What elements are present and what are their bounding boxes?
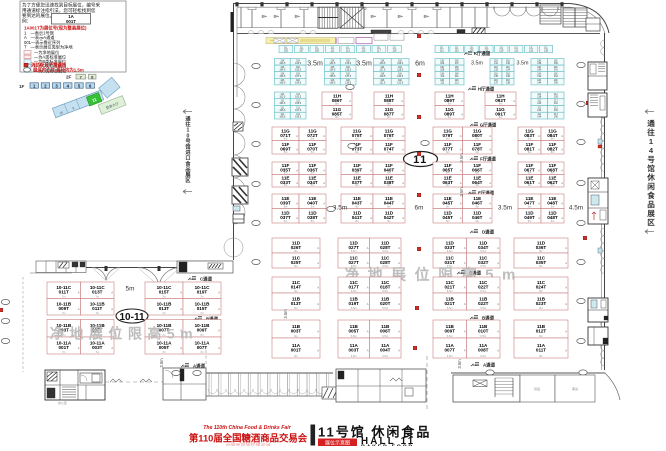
svg-text:6.5m: 6.5m bbox=[382, 289, 388, 293]
svg-text:6m: 6m bbox=[294, 249, 298, 253]
svg-text:106.5: 106.5 bbox=[279, 109, 286, 112]
svg-text:132: 132 bbox=[506, 62, 511, 65]
svg-text:A: A bbox=[367, 348, 369, 352]
svg-text:007T: 007T bbox=[445, 347, 456, 352]
svg-text:6.5m: 6.5m bbox=[447, 334, 453, 338]
svg-text:区: 区 bbox=[185, 176, 191, 184]
svg-text:A: A bbox=[370, 148, 372, 152]
svg-text:A: A bbox=[565, 348, 567, 352]
svg-text:6m: 6m bbox=[446, 137, 450, 141]
svg-text:6m: 6m bbox=[499, 102, 503, 106]
svg-text:8m: 8m bbox=[539, 264, 543, 268]
svg-text:7m: 7m bbox=[95, 350, 99, 354]
svg-text:6.5m: 6.5m bbox=[382, 249, 388, 253]
svg-text:3.5m: 3.5m bbox=[159, 358, 164, 368]
svg-text:013T: 013T bbox=[291, 301, 302, 306]
svg-text:6m: 6m bbox=[387, 171, 391, 175]
svg-text:A: A bbox=[398, 285, 400, 289]
svg-text:A: A bbox=[218, 329, 220, 333]
svg-text:A: A bbox=[497, 348, 499, 352]
svg-text:005T: 005T bbox=[349, 328, 360, 333]
svg-text:140: 140 bbox=[537, 102, 542, 105]
svg-text:6.5m: 6.5m bbox=[351, 306, 357, 310]
svg-text:A: A bbox=[367, 285, 369, 289]
svg-text:A: A bbox=[538, 134, 540, 138]
svg-text:3.5m: 3.5m bbox=[471, 61, 483, 67]
svg-text:7m: 7m bbox=[62, 350, 66, 354]
svg-text:A: A bbox=[367, 261, 369, 265]
svg-text:6m: 6m bbox=[387, 115, 391, 119]
svg-text:8m: 8m bbox=[539, 249, 543, 253]
svg-text:143: 143 bbox=[554, 109, 559, 112]
svg-text:A: A bbox=[323, 134, 325, 138]
svg-text:6m: 6m bbox=[551, 183, 555, 187]
svg-text:6m: 6m bbox=[499, 115, 503, 119]
svg-text:A: A bbox=[317, 329, 319, 333]
svg-text:6m: 6m bbox=[355, 183, 359, 187]
svg-text:6m: 6m bbox=[528, 219, 532, 223]
svg-text:6m: 6m bbox=[551, 219, 555, 223]
svg-text:A: A bbox=[464, 246, 466, 250]
svg-text:133.5: 133.5 bbox=[345, 62, 352, 65]
svg-text:5m: 5m bbox=[126, 286, 135, 293]
svg-text:1F: 1F bbox=[19, 84, 25, 89]
svg-text:6m: 6m bbox=[475, 205, 479, 209]
svg-text:115: 115 bbox=[361, 50, 365, 53]
svg-text:H厅通道: H厅通道 bbox=[478, 85, 495, 92]
svg-text:库房: 库房 bbox=[572, 386, 578, 391]
svg-text:3.5m: 3.5m bbox=[517, 61, 529, 67]
svg-text:A: A bbox=[565, 261, 567, 265]
svg-text:011T: 011T bbox=[536, 347, 546, 352]
svg-text:108.5: 108.5 bbox=[279, 82, 286, 85]
svg-text:A: A bbox=[489, 181, 491, 185]
svg-text:A: A bbox=[460, 148, 462, 152]
svg-text:103.5: 103.5 bbox=[295, 95, 302, 98]
svg-text:6m: 6m bbox=[415, 61, 425, 68]
svg-text:6.5m: 6.5m bbox=[382, 354, 388, 358]
svg-text:5m: 5m bbox=[311, 219, 315, 223]
svg-text:6m: 6m bbox=[355, 219, 359, 223]
svg-text:货运: 货运 bbox=[534, 386, 540, 391]
svg-text:009T: 009T bbox=[445, 328, 456, 333]
svg-text:6.5m: 6.5m bbox=[351, 334, 357, 338]
svg-text:3.5m: 3.5m bbox=[283, 309, 288, 319]
svg-text:103.5: 103.5 bbox=[295, 62, 302, 65]
svg-text:A: A bbox=[296, 216, 298, 220]
svg-text:118.5: 118.5 bbox=[397, 68, 403, 71]
svg-text:6.5m: 6.5m bbox=[382, 306, 388, 310]
svg-text:6m: 6m bbox=[446, 183, 450, 187]
svg-text:A: A bbox=[370, 169, 372, 173]
svg-text:8m: 8m bbox=[539, 289, 543, 293]
svg-text:A: A bbox=[464, 302, 466, 306]
svg-text:A通道: A通道 bbox=[483, 361, 496, 368]
svg-text:5m: 5m bbox=[284, 137, 288, 141]
svg-text:117: 117 bbox=[377, 50, 381, 53]
svg-text:A: A bbox=[464, 285, 466, 289]
svg-text:009T: 009T bbox=[197, 328, 208, 333]
svg-text:A: A bbox=[402, 134, 404, 138]
svg-text:106: 106 bbox=[440, 62, 445, 65]
svg-text:138.5: 138.5 bbox=[329, 82, 336, 85]
svg-text:A: A bbox=[565, 246, 567, 250]
svg-text:7m: 7m bbox=[62, 311, 66, 315]
svg-text:6m: 6m bbox=[335, 115, 339, 119]
svg-text:通: 通 bbox=[647, 118, 655, 128]
svg-text:A: A bbox=[78, 346, 80, 350]
svg-text:A: A bbox=[513, 113, 515, 117]
svg-text:013T: 013T bbox=[159, 306, 170, 311]
svg-text:A: A bbox=[538, 169, 540, 173]
svg-text:6.5m: 6.5m bbox=[480, 289, 486, 293]
svg-text:A: A bbox=[370, 134, 372, 138]
svg-text:A: A bbox=[497, 302, 499, 306]
svg-text:115.5: 115.5 bbox=[379, 62, 385, 65]
svg-text:110: 110 bbox=[440, 75, 444, 78]
svg-text:145: 145 bbox=[554, 116, 559, 119]
svg-text:102.5: 102.5 bbox=[279, 62, 286, 65]
svg-text:休: 休 bbox=[646, 172, 655, 182]
svg-text:A: A bbox=[561, 216, 563, 220]
svg-text:012T: 012T bbox=[536, 328, 547, 333]
svg-text:8m: 8m bbox=[539, 354, 543, 358]
svg-text:A: A bbox=[402, 202, 404, 206]
svg-text:品: 品 bbox=[647, 200, 655, 209]
svg-text:021T: 021T bbox=[445, 284, 456, 289]
svg-text:A: A bbox=[349, 99, 351, 103]
svg-text:133: 133 bbox=[529, 50, 534, 53]
svg-text:003T: 003T bbox=[291, 328, 302, 333]
svg-text:022T: 022T bbox=[478, 301, 489, 306]
svg-text:116.5: 116.5 bbox=[397, 62, 403, 65]
svg-text:6.5m: 6.5m bbox=[447, 354, 453, 358]
svg-text:001T: 001T bbox=[66, 19, 76, 24]
svg-text:A: A bbox=[296, 134, 298, 138]
svg-text:123: 123 bbox=[455, 50, 460, 53]
svg-text:6m: 6m bbox=[475, 137, 479, 141]
svg-text:A: A bbox=[460, 216, 462, 220]
svg-text:第110届全国糖酒商品交易会: 第110届全国糖酒商品交易会 bbox=[189, 433, 308, 444]
svg-text:C通道: C通道 bbox=[200, 275, 213, 282]
svg-text:142: 142 bbox=[537, 109, 542, 112]
svg-text:105.5: 105.5 bbox=[295, 68, 302, 71]
svg-text:6m: 6m bbox=[387, 102, 391, 106]
svg-text:018T: 018T bbox=[380, 284, 391, 289]
svg-text:134.5: 134.5 bbox=[329, 68, 336, 71]
svg-text:136.5: 136.5 bbox=[329, 75, 336, 78]
svg-text:7m: 7m bbox=[162, 350, 166, 354]
svg-text:010T: 010T bbox=[478, 328, 489, 333]
svg-text:004T: 004T bbox=[380, 347, 391, 352]
svg-text:020T: 020T bbox=[380, 301, 391, 306]
svg-text:141: 141 bbox=[554, 68, 559, 71]
svg-text:6m: 6m bbox=[387, 183, 391, 187]
svg-text:6m: 6m bbox=[355, 150, 359, 154]
svg-text:144: 144 bbox=[537, 82, 542, 85]
svg-text:024T: 024T bbox=[536, 284, 547, 289]
svg-text:A: A bbox=[497, 285, 499, 289]
svg-text:A: A bbox=[561, 148, 563, 152]
svg-text:7m: 7m bbox=[162, 311, 166, 315]
svg-text:A: A bbox=[565, 285, 567, 289]
svg-text:6m: 6m bbox=[294, 354, 298, 358]
svg-text:109.5: 109.5 bbox=[295, 116, 302, 119]
svg-text:121: 121 bbox=[440, 50, 445, 53]
svg-text:5m: 5m bbox=[311, 150, 315, 154]
svg-text:号: 号 bbox=[647, 155, 655, 164]
svg-text:139: 139 bbox=[554, 62, 559, 65]
svg-text:A: A bbox=[323, 181, 325, 185]
svg-text:6.5m: 6.5m bbox=[447, 289, 453, 293]
svg-text:6m: 6m bbox=[528, 137, 532, 141]
svg-text:6m: 6m bbox=[528, 171, 532, 175]
svg-text:121.5: 121.5 bbox=[379, 82, 386, 85]
svg-text:3.5m: 3.5m bbox=[356, 61, 372, 68]
svg-text:120.5: 120.5 bbox=[397, 75, 404, 78]
svg-text:6m: 6m bbox=[446, 150, 450, 154]
svg-text:A: A bbox=[317, 285, 319, 289]
svg-text:021T: 021T bbox=[445, 301, 456, 306]
svg-text:A: A bbox=[111, 307, 113, 311]
svg-text:017T: 017T bbox=[349, 284, 360, 289]
svg-text:108.5: 108.5 bbox=[279, 116, 286, 119]
svg-text:139: 139 bbox=[554, 95, 559, 98]
svg-text:143: 143 bbox=[554, 75, 559, 78]
svg-text:7m: 7m bbox=[200, 295, 204, 299]
svg-text:3.5m: 3.5m bbox=[459, 153, 464, 163]
svg-text:138: 138 bbox=[537, 62, 542, 65]
svg-text:A: A bbox=[296, 181, 298, 185]
svg-text:144: 144 bbox=[537, 116, 542, 119]
svg-text:142: 142 bbox=[537, 75, 542, 78]
svg-text:136: 136 bbox=[506, 75, 511, 78]
svg-text:A: A bbox=[489, 134, 491, 138]
svg-text:132.5: 132.5 bbox=[329, 62, 336, 65]
svg-text:6m: 6m bbox=[528, 205, 532, 209]
svg-text:A: A bbox=[561, 169, 563, 173]
svg-text:131: 131 bbox=[514, 50, 519, 53]
svg-text:134: 134 bbox=[506, 68, 511, 71]
svg-text:6m: 6m bbox=[355, 205, 359, 209]
svg-text:A: A bbox=[402, 216, 404, 220]
svg-text:A: A bbox=[401, 113, 403, 117]
svg-text:011T: 011T bbox=[59, 290, 69, 295]
svg-text:A: A bbox=[367, 302, 369, 306]
svg-text:A: A bbox=[180, 346, 182, 350]
svg-text:023T: 023T bbox=[536, 301, 547, 306]
svg-text:A: A bbox=[461, 99, 463, 103]
svg-text:135: 135 bbox=[494, 75, 499, 78]
svg-text:6.5m: 6.5m bbox=[382, 334, 388, 338]
svg-text:135.5: 135.5 bbox=[345, 68, 352, 71]
svg-text:A: A bbox=[497, 261, 499, 265]
svg-text:A: A bbox=[323, 169, 325, 173]
svg-text:135: 135 bbox=[544, 50, 549, 53]
svg-text:137.5: 137.5 bbox=[345, 75, 352, 78]
svg-text:A: A bbox=[460, 202, 462, 206]
svg-text:001T: 001T bbox=[59, 345, 70, 350]
svg-text:10-11: 10-11 bbox=[119, 312, 144, 323]
svg-text:A: A bbox=[398, 302, 400, 306]
svg-text:6m: 6m bbox=[448, 115, 452, 119]
svg-text:129: 129 bbox=[499, 50, 504, 53]
svg-text:119.5: 119.5 bbox=[379, 75, 385, 78]
svg-text:6m: 6m bbox=[551, 205, 555, 209]
svg-text:6.5m: 6.5m bbox=[480, 334, 486, 338]
svg-text:6.5m: 6.5m bbox=[480, 249, 486, 253]
svg-text:A: A bbox=[296, 148, 298, 152]
svg-text:145: 145 bbox=[554, 82, 559, 85]
svg-text:A: A bbox=[402, 169, 404, 173]
svg-text:K厅通道: K厅通道 bbox=[474, 50, 491, 57]
svg-text:A: A bbox=[489, 202, 491, 206]
svg-text:138: 138 bbox=[537, 95, 542, 98]
svg-text:6.5m: 6.5m bbox=[447, 249, 453, 253]
svg-text:The 110th China Food & Drinks: The 110th China Food & Drinks Fair bbox=[203, 425, 292, 431]
svg-text:A: A bbox=[402, 148, 404, 152]
svg-text:7m: 7m bbox=[200, 350, 204, 354]
svg-text:中国西部国际博览城: 中国西部国际博览城 bbox=[225, 443, 270, 447]
svg-text:6.5m: 6.5m bbox=[351, 354, 357, 358]
svg-text:A: A bbox=[218, 307, 220, 311]
svg-text:6m: 6m bbox=[475, 171, 479, 175]
svg-text:4.5m: 4.5m bbox=[569, 205, 583, 212]
svg-text:D通道: D通道 bbox=[482, 228, 495, 235]
svg-text:109: 109 bbox=[315, 50, 320, 53]
svg-text:A: A bbox=[561, 134, 563, 138]
svg-text:009T: 009T bbox=[59, 306, 70, 311]
svg-text:A: A bbox=[401, 99, 403, 103]
svg-text:138: 138 bbox=[506, 82, 511, 85]
svg-text:A: A bbox=[489, 216, 491, 220]
svg-text:A: A bbox=[402, 181, 404, 185]
svg-text:6m: 6m bbox=[446, 219, 450, 223]
svg-text:015T: 015T bbox=[159, 290, 170, 295]
svg-text:A: A bbox=[323, 148, 325, 152]
svg-text:7m: 7m bbox=[95, 295, 99, 299]
svg-text:A: A bbox=[218, 346, 220, 350]
svg-text:008T: 008T bbox=[478, 347, 489, 352]
svg-text:7m: 7m bbox=[162, 295, 166, 299]
svg-text:A: A bbox=[398, 348, 400, 352]
svg-text:A: A bbox=[497, 329, 499, 333]
svg-text:122.5: 122.5 bbox=[397, 82, 404, 85]
svg-text:A: A bbox=[561, 181, 563, 185]
svg-text:014T: 014T bbox=[291, 284, 302, 289]
svg-text:113: 113 bbox=[455, 82, 459, 85]
svg-text:展位内立柱 直径均为1.5m: 展位内立柱 直径均为1.5m bbox=[33, 67, 84, 74]
svg-text:107.5: 107.5 bbox=[295, 109, 302, 112]
svg-text:6m: 6m bbox=[446, 171, 450, 175]
svg-text:5m: 5m bbox=[284, 219, 288, 223]
svg-text:6m: 6m bbox=[551, 137, 555, 141]
svg-text:A: A bbox=[370, 216, 372, 220]
svg-text:6.5m: 6.5m bbox=[351, 249, 357, 253]
svg-text:6m: 6m bbox=[528, 183, 532, 187]
svg-text:区: 区 bbox=[647, 218, 655, 227]
svg-text:107: 107 bbox=[455, 62, 460, 65]
svg-text:6m: 6m bbox=[387, 137, 391, 141]
svg-text:A: A bbox=[513, 99, 515, 103]
svg-text:105: 105 bbox=[284, 50, 289, 53]
svg-text:A: A bbox=[460, 134, 462, 138]
svg-text:8m: 8m bbox=[539, 334, 543, 338]
svg-text:A: A bbox=[323, 216, 325, 220]
svg-text:106.5: 106.5 bbox=[279, 75, 286, 78]
svg-text:A: A bbox=[460, 181, 462, 185]
svg-text:6m: 6m bbox=[387, 150, 391, 154]
svg-text:A: A bbox=[398, 329, 400, 333]
svg-text:7m: 7m bbox=[95, 311, 99, 315]
svg-text:5m: 5m bbox=[284, 150, 288, 154]
svg-text:6m: 6m bbox=[475, 150, 479, 154]
svg-text:A: A bbox=[370, 181, 372, 185]
svg-text:6m: 6m bbox=[448, 102, 452, 106]
svg-text:117.5: 117.5 bbox=[379, 68, 385, 71]
svg-text:113: 113 bbox=[346, 50, 350, 53]
svg-text:食: 食 bbox=[647, 190, 655, 200]
svg-text:6m: 6m bbox=[446, 205, 450, 209]
svg-text:5m: 5m bbox=[311, 183, 315, 187]
svg-text:6m: 6m bbox=[528, 150, 532, 154]
svg-text:119: 119 bbox=[392, 50, 396, 53]
svg-text:A: A bbox=[538, 216, 540, 220]
svg-text:展位示意图: 展位示意图 bbox=[325, 439, 350, 446]
svg-text:A: A bbox=[317, 302, 319, 306]
svg-text:001T: 001T bbox=[291, 347, 302, 352]
svg-text:104.5: 104.5 bbox=[279, 102, 286, 105]
svg-text:112: 112 bbox=[440, 82, 444, 85]
svg-text:A: A bbox=[565, 302, 567, 306]
svg-text:8m: 8m bbox=[539, 306, 543, 310]
svg-text:A: A bbox=[538, 148, 540, 152]
svg-text:006T: 006T bbox=[380, 328, 391, 333]
svg-text:6m: 6m bbox=[294, 264, 298, 268]
svg-text:A: A bbox=[317, 348, 319, 352]
svg-text:109.5: 109.5 bbox=[295, 82, 302, 85]
svg-text:7m: 7m bbox=[200, 311, 204, 315]
svg-text:003T: 003T bbox=[349, 347, 360, 352]
svg-text:5m: 5m bbox=[311, 205, 315, 209]
svg-text:A: A bbox=[78, 291, 80, 295]
svg-text:6m: 6m bbox=[415, 205, 424, 212]
svg-text:A: A bbox=[218, 291, 220, 295]
svg-text:6m: 6m bbox=[475, 183, 479, 187]
svg-text:A: A bbox=[111, 346, 113, 350]
svg-text:A: A bbox=[367, 246, 369, 250]
svg-text:3.5m: 3.5m bbox=[457, 359, 462, 369]
svg-text:105.5: 105.5 bbox=[295, 102, 302, 105]
svg-text:7m: 7m bbox=[62, 295, 66, 299]
svg-text:5m: 5m bbox=[311, 137, 315, 141]
svg-text:A: A bbox=[323, 202, 325, 206]
svg-text:5m: 5m bbox=[284, 205, 288, 209]
svg-text:2F: 2F bbox=[66, 75, 72, 80]
svg-text:7m: 7m bbox=[200, 333, 204, 337]
svg-text:6m: 6m bbox=[355, 137, 359, 141]
svg-text:5m: 5m bbox=[284, 171, 288, 175]
svg-text:6m: 6m bbox=[551, 150, 555, 154]
svg-text:102.5: 102.5 bbox=[279, 95, 286, 98]
svg-text:6m: 6m bbox=[551, 171, 555, 175]
svg-text:A: A bbox=[367, 329, 369, 333]
svg-text:6m: 6m bbox=[294, 334, 298, 338]
svg-text:A: A bbox=[461, 113, 463, 117]
svg-text:馆: 馆 bbox=[647, 163, 655, 173]
svg-text:A: A bbox=[111, 291, 113, 295]
svg-text:A: A bbox=[497, 246, 499, 250]
